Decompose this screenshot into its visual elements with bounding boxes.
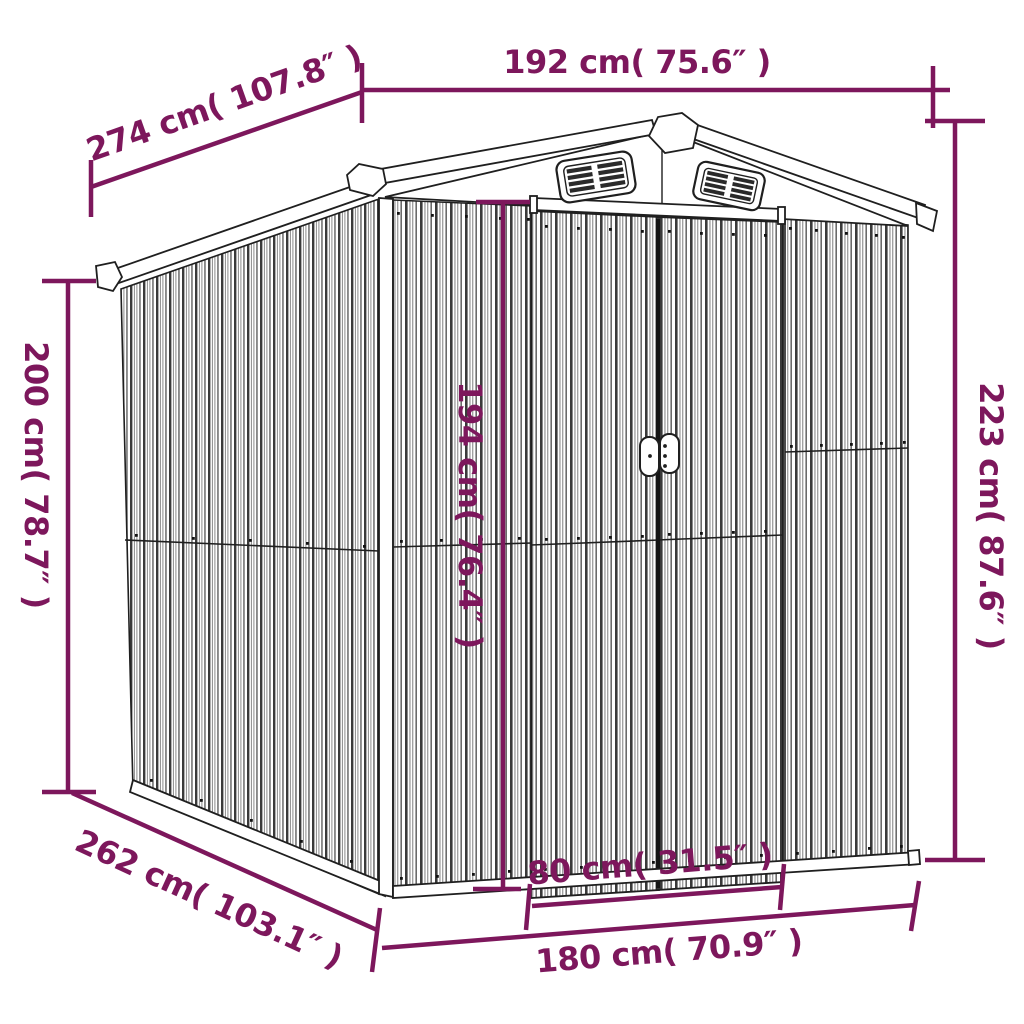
roof-corner-cap-left bbox=[347, 164, 386, 196]
left-side-wall bbox=[121, 199, 385, 896]
shed bbox=[96, 113, 937, 898]
roof-tip-cap-back bbox=[96, 262, 122, 291]
dimension-label-roof-width: 192 cm( 75.6″ ) bbox=[503, 46, 771, 78]
door-handle bbox=[640, 434, 679, 476]
front-wall-right-section bbox=[785, 214, 908, 871]
sliding-doors bbox=[531, 211, 783, 898]
dimension-label-wall-height: 200 cm( 78.7″ ) bbox=[20, 341, 52, 609]
right-door bbox=[657, 217, 783, 890]
dimension-label-door-height: 194 cm( 76.4″ ) bbox=[454, 381, 486, 649]
dimension-label-total-height: 223 cm( 87.6″ ) bbox=[975, 382, 1007, 650]
roof-tip-cap-right bbox=[916, 203, 937, 231]
dimension-diagram: 192 cm( 75.6″ ) 274 cm( 107.8″ ) 200 cm(… bbox=[0, 0, 1024, 1024]
corner-trim bbox=[379, 198, 393, 897]
left-door bbox=[531, 211, 659, 898]
